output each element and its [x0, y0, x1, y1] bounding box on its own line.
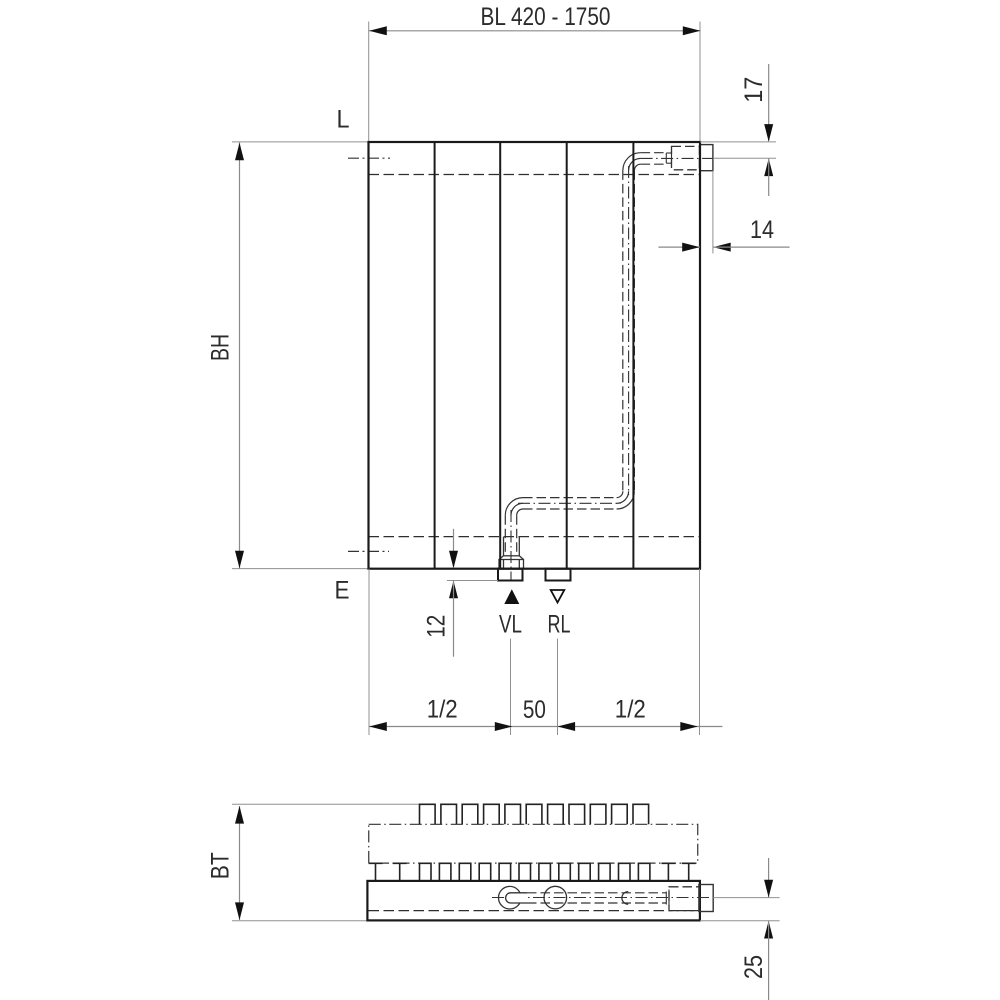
svg-text:17: 17 — [740, 77, 768, 103]
svg-text:E: E — [335, 577, 350, 605]
svg-text:RL: RL — [548, 611, 571, 639]
svg-text:BL 420 - 1750: BL 420 - 1750 — [481, 3, 611, 31]
svg-text:25: 25 — [740, 955, 768, 979]
svg-text:1/2: 1/2 — [615, 696, 646, 724]
svg-text:14: 14 — [750, 216, 774, 244]
svg-text:50: 50 — [523, 696, 546, 724]
svg-text:12: 12 — [422, 615, 450, 638]
svg-text:VL: VL — [499, 611, 522, 639]
svg-text:BT: BT — [207, 852, 235, 879]
svg-text:L: L — [337, 106, 350, 134]
svg-text:BH: BH — [207, 334, 235, 361]
svg-text:1/2: 1/2 — [427, 696, 458, 724]
